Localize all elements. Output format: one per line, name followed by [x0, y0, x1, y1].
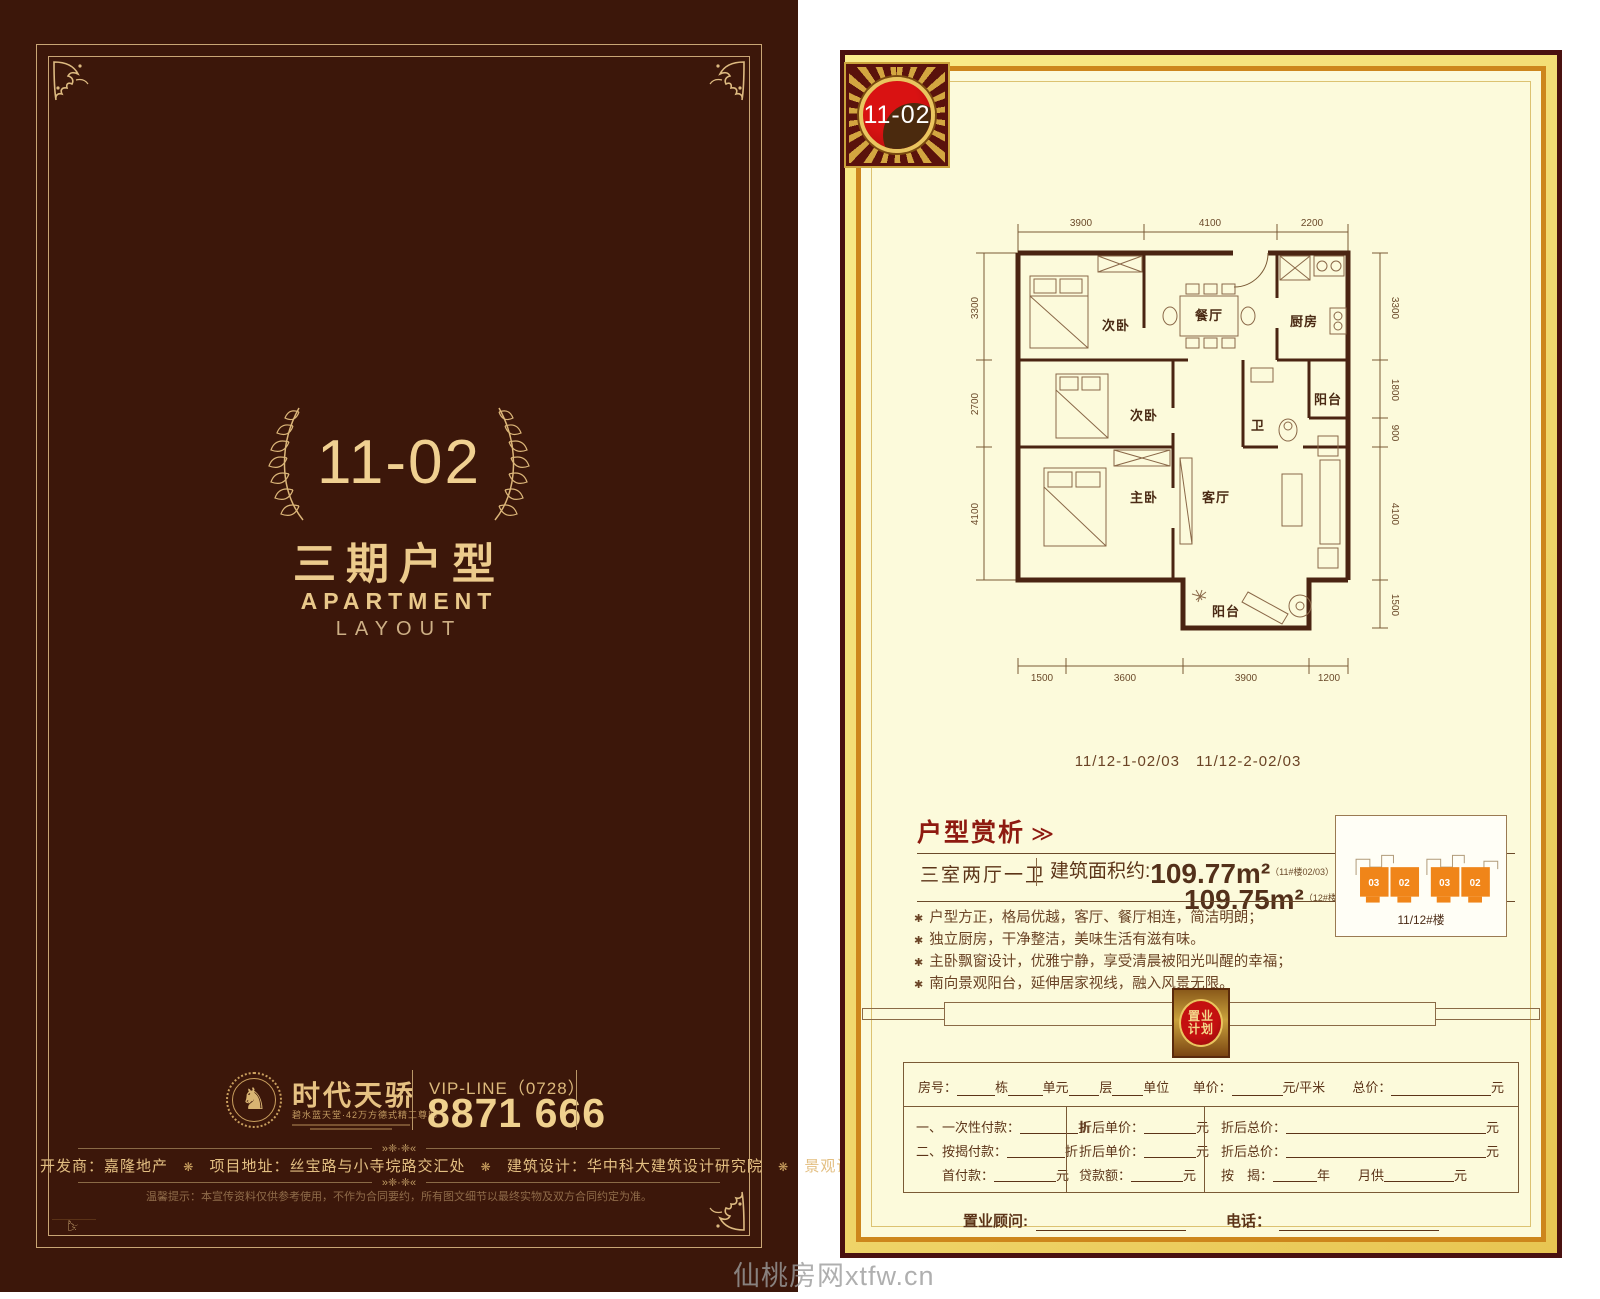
analysis-title-text: 户型赏析	[917, 819, 1025, 847]
separator-icon: ❋	[471, 1160, 502, 1174]
separator-icon: ❋	[768, 1160, 799, 1174]
room-number-row: 房号： 栋 单元 层 单位 单价： 元/平米 总价： 元	[904, 1063, 1518, 1107]
form-label: 总价：	[1352, 1077, 1391, 1096]
unit-badge: 11-02	[844, 62, 950, 168]
diagram-caption: 11/12#楼	[1397, 913, 1444, 927]
form-label: 单位	[1143, 1077, 1169, 1096]
form-label: 房号：	[918, 1077, 957, 1096]
unit-cell-label: 02	[1399, 878, 1410, 889]
payment-col-2: 折后单价：元 折后单价：元 贷款额：元	[1066, 1107, 1204, 1192]
form-label: 元/平米	[1283, 1077, 1326, 1096]
form-label: 元	[1486, 1120, 1499, 1135]
dim-label: 1500	[1389, 594, 1400, 617]
double-arrow-icon: ≫	[1025, 821, 1056, 846]
unit-type: 三室两厅一卫	[920, 860, 1046, 887]
building-key-diagram: 03 02 03 02 11/12#楼	[1335, 815, 1507, 937]
area-note-1: （11#楼02/03）	[1270, 867, 1334, 877]
form-label: 元	[1486, 1144, 1499, 1159]
blank-line	[1144, 1121, 1196, 1134]
dim-label: 2200	[1301, 218, 1324, 229]
blank-line	[1384, 1169, 1454, 1182]
vertical-divider	[576, 1070, 577, 1130]
form-label: 年	[1317, 1168, 1330, 1183]
floral-corner-icon	[52, 1219, 96, 1232]
room-label: 次卧	[1130, 408, 1158, 423]
en-title-apartment: APARTMENT	[0, 588, 798, 615]
en-title-layout: LAYOUT	[0, 618, 798, 641]
consultant-row: 置业顾问: 电话：	[840, 1210, 1562, 1231]
purchase-plan-badge: 置业 计划	[1172, 988, 1230, 1058]
payment-col-1: 一、一次性付款：折 二、按揭付款：折 首付款：元	[904, 1107, 1066, 1192]
analysis-title: 户型赏析≫	[917, 813, 1056, 849]
site-watermark: 仙桃房网xtfw.cn	[733, 1254, 935, 1293]
blank-line	[1069, 1083, 1100, 1096]
form-label: 折后单价：	[1079, 1144, 1144, 1159]
brand-emblem-icon: ♞	[226, 1072, 282, 1128]
form-label: 折后总价：	[1221, 1120, 1286, 1135]
form-label: 首付款：	[942, 1168, 994, 1183]
furniture	[1030, 256, 1346, 624]
phone-label: 电话：	[1226, 1210, 1271, 1231]
dim-label: 3900	[1070, 218, 1093, 229]
purchase-plan-divider: 置业 计划	[862, 988, 1540, 1040]
series-title: 三期户型	[0, 530, 798, 592]
room-label: 次卧	[1102, 318, 1130, 333]
bullet-text: 主卧飘窗设计，优雅宁静，享受清晨被阳光叫醒的幸福；	[929, 954, 1292, 970]
dim-label: 3300	[1389, 297, 1400, 320]
consultant-label: 置业顾问:	[963, 1210, 1028, 1231]
blank-line	[1131, 1169, 1183, 1182]
unit-number-row: 11-02	[0, 402, 798, 524]
blank-line	[1391, 1083, 1491, 1096]
unit-number: 11-02	[317, 408, 481, 518]
blank-line	[1279, 1218, 1439, 1231]
dim-label: 1200	[1318, 673, 1341, 684]
vertical-divider	[412, 1070, 413, 1130]
room-label: 阳台	[1212, 604, 1240, 619]
floral-corner-icon	[52, 60, 96, 104]
room-label: 卫	[1251, 418, 1265, 433]
info-value: 华中科大建筑设计研究院	[587, 1158, 763, 1175]
price-plan-form: 房号： 栋 单元 层 单位 单价： 元/平米 总价： 元 一、一次性付款：折 二…	[903, 1062, 1519, 1193]
room-label: 厨房	[1290, 314, 1318, 329]
blank-line	[957, 1083, 995, 1096]
ornament-divider: »❈·❈«	[78, 1142, 720, 1155]
disclaimer-text: 温馨提示：本宣传资料仅供参考使用，不作为合同要约，所有图文细节以最终实物及双方合…	[60, 1188, 738, 1204]
badge-unit-number: 11-02	[863, 101, 930, 130]
badge-medallion: 11-02	[859, 77, 935, 153]
bullet-text: 户型方正，格局优越，客厅、餐厅相连，简洁明朗；	[929, 910, 1263, 926]
blank-line	[1008, 1083, 1042, 1096]
right-floorplan-page: 11-02 3900 4100 2200 1500 3600 3900	[840, 50, 1562, 1258]
brochure-spread: 11-02 三期户型 APARTMENT LAYOUT ♞ 时代天骄 碧水蓝天堂…	[0, 0, 1600, 1299]
vertical-divider	[1036, 858, 1037, 886]
form-label: 元	[1491, 1077, 1504, 1096]
info-label: 建筑设计：	[507, 1158, 587, 1175]
project-info-row: 开发商：嘉隆地产 ❋ 项目地址：丝宝路与小寺垸路交汇处 ❋ 建筑设计：华中科大建…	[40, 1155, 758, 1176]
laurel-right-icon	[487, 402, 531, 524]
form-label: 折后单价：	[1079, 1120, 1144, 1135]
dim-label: 1800	[1389, 379, 1400, 402]
bullet-icon: ✱	[914, 913, 929, 925]
blank-line	[1286, 1145, 1486, 1158]
dim-label: 3900	[1235, 673, 1258, 684]
room-label: 主卧	[1130, 490, 1158, 505]
blank-line	[1232, 1083, 1283, 1096]
ornament-glyph: »❈·❈«	[382, 1142, 416, 1155]
bullet-item: ✱主卧飘窗设计，优雅宁静，享受清晨被阳光叫醒的幸福；	[914, 952, 1502, 974]
info-value: 嘉隆地产	[104, 1158, 168, 1175]
form-label: 贷款额：	[1079, 1168, 1131, 1183]
form-label: 栋	[995, 1077, 1008, 1096]
bullet-icon: ✱	[914, 935, 929, 947]
vip-phone-number: 8871 666	[427, 1090, 606, 1137]
room-label: 客厅	[1202, 490, 1230, 505]
form-label: 按 揭：	[1221, 1168, 1273, 1183]
brand-tagline: 碧水蓝天堂·42万方德式精工尊邸	[292, 1108, 438, 1121]
payment-grid: 一、一次性付款：折 二、按揭付款：折 首付款：元 折后单价：元 折后单价：元 贷…	[904, 1107, 1518, 1192]
form-label: 单价：	[1193, 1077, 1232, 1096]
blank-line	[1007, 1145, 1065, 1158]
dim-label: 3300	[970, 296, 981, 319]
form-label: 元	[1183, 1168, 1196, 1183]
entry-door-arc	[1234, 253, 1268, 287]
form-label: 一、一次性付款：	[916, 1120, 1020, 1135]
separator-icon: ❋	[173, 1160, 204, 1174]
dim-label: 4100	[1389, 503, 1400, 526]
blank-line	[1286, 1121, 1486, 1134]
unit-cell-label: 03	[1368, 878, 1379, 889]
left-cover-page: 11-02 三期户型 APARTMENT LAYOUT ♞ 时代天骄 碧水蓝天堂…	[0, 0, 798, 1292]
form-label: 单元	[1043, 1077, 1069, 1096]
dim-label: 3600	[1114, 673, 1137, 684]
room-label: 餐厅	[1194, 308, 1223, 323]
dim-label: 2700	[970, 392, 981, 415]
bullet-icon: ✱	[914, 957, 929, 969]
room-label: 阳台	[1314, 392, 1342, 407]
form-label: 月供	[1358, 1168, 1384, 1183]
dim-label: 900	[1389, 425, 1400, 442]
blank-line	[1273, 1169, 1317, 1182]
unit-cell-label: 03	[1439, 878, 1450, 889]
payment-col-3: 折后总价：元 折后总价：元 按 揭：年月供元	[1204, 1107, 1518, 1192]
badge-line-2: 计划	[1188, 1023, 1214, 1036]
purchase-plan-medallion: 置业 计划	[1179, 999, 1223, 1047]
laurel-left-icon	[267, 402, 311, 524]
outer-walls	[1018, 253, 1348, 628]
blank-line	[1144, 1145, 1196, 1158]
blank-line	[1112, 1083, 1143, 1096]
area-label: 建筑面积约:	[1050, 861, 1150, 882]
interior-walls	[1018, 253, 1348, 580]
inner-frame-line	[48, 56, 750, 1236]
bullet-text: 独立厨房，干净整洁，美味生活有滋有味。	[929, 932, 1205, 948]
form-label: 元	[1454, 1168, 1467, 1183]
info-value: 丝宝路与小寺垸路交汇处	[289, 1158, 465, 1175]
dim-label: 1500	[1031, 673, 1054, 684]
plan-caption: 11/12-1-02/03 11/12-2-02/03	[948, 750, 1428, 771]
brand-fine-print-lines	[292, 1122, 410, 1130]
dim-label: 4100	[970, 502, 981, 525]
floor-plan: 3900 4100 2200 1500 3600 3900 1200 3300 …	[948, 198, 1408, 753]
dim-label: 4100	[1199, 218, 1222, 229]
unit-cell-label: 02	[1470, 878, 1481, 889]
blank-line	[1036, 1218, 1186, 1231]
info-label: 项目地址：	[209, 1158, 289, 1175]
floral-corner-icon	[702, 60, 746, 104]
info-label: 开发商：	[40, 1158, 104, 1175]
blank-line	[994, 1169, 1056, 1182]
pegasus-icon: ♞	[232, 1078, 276, 1122]
form-label: 层	[1099, 1077, 1112, 1096]
form-label: 二、按揭付款：	[916, 1144, 1007, 1159]
form-label: 折后总价：	[1221, 1144, 1286, 1159]
